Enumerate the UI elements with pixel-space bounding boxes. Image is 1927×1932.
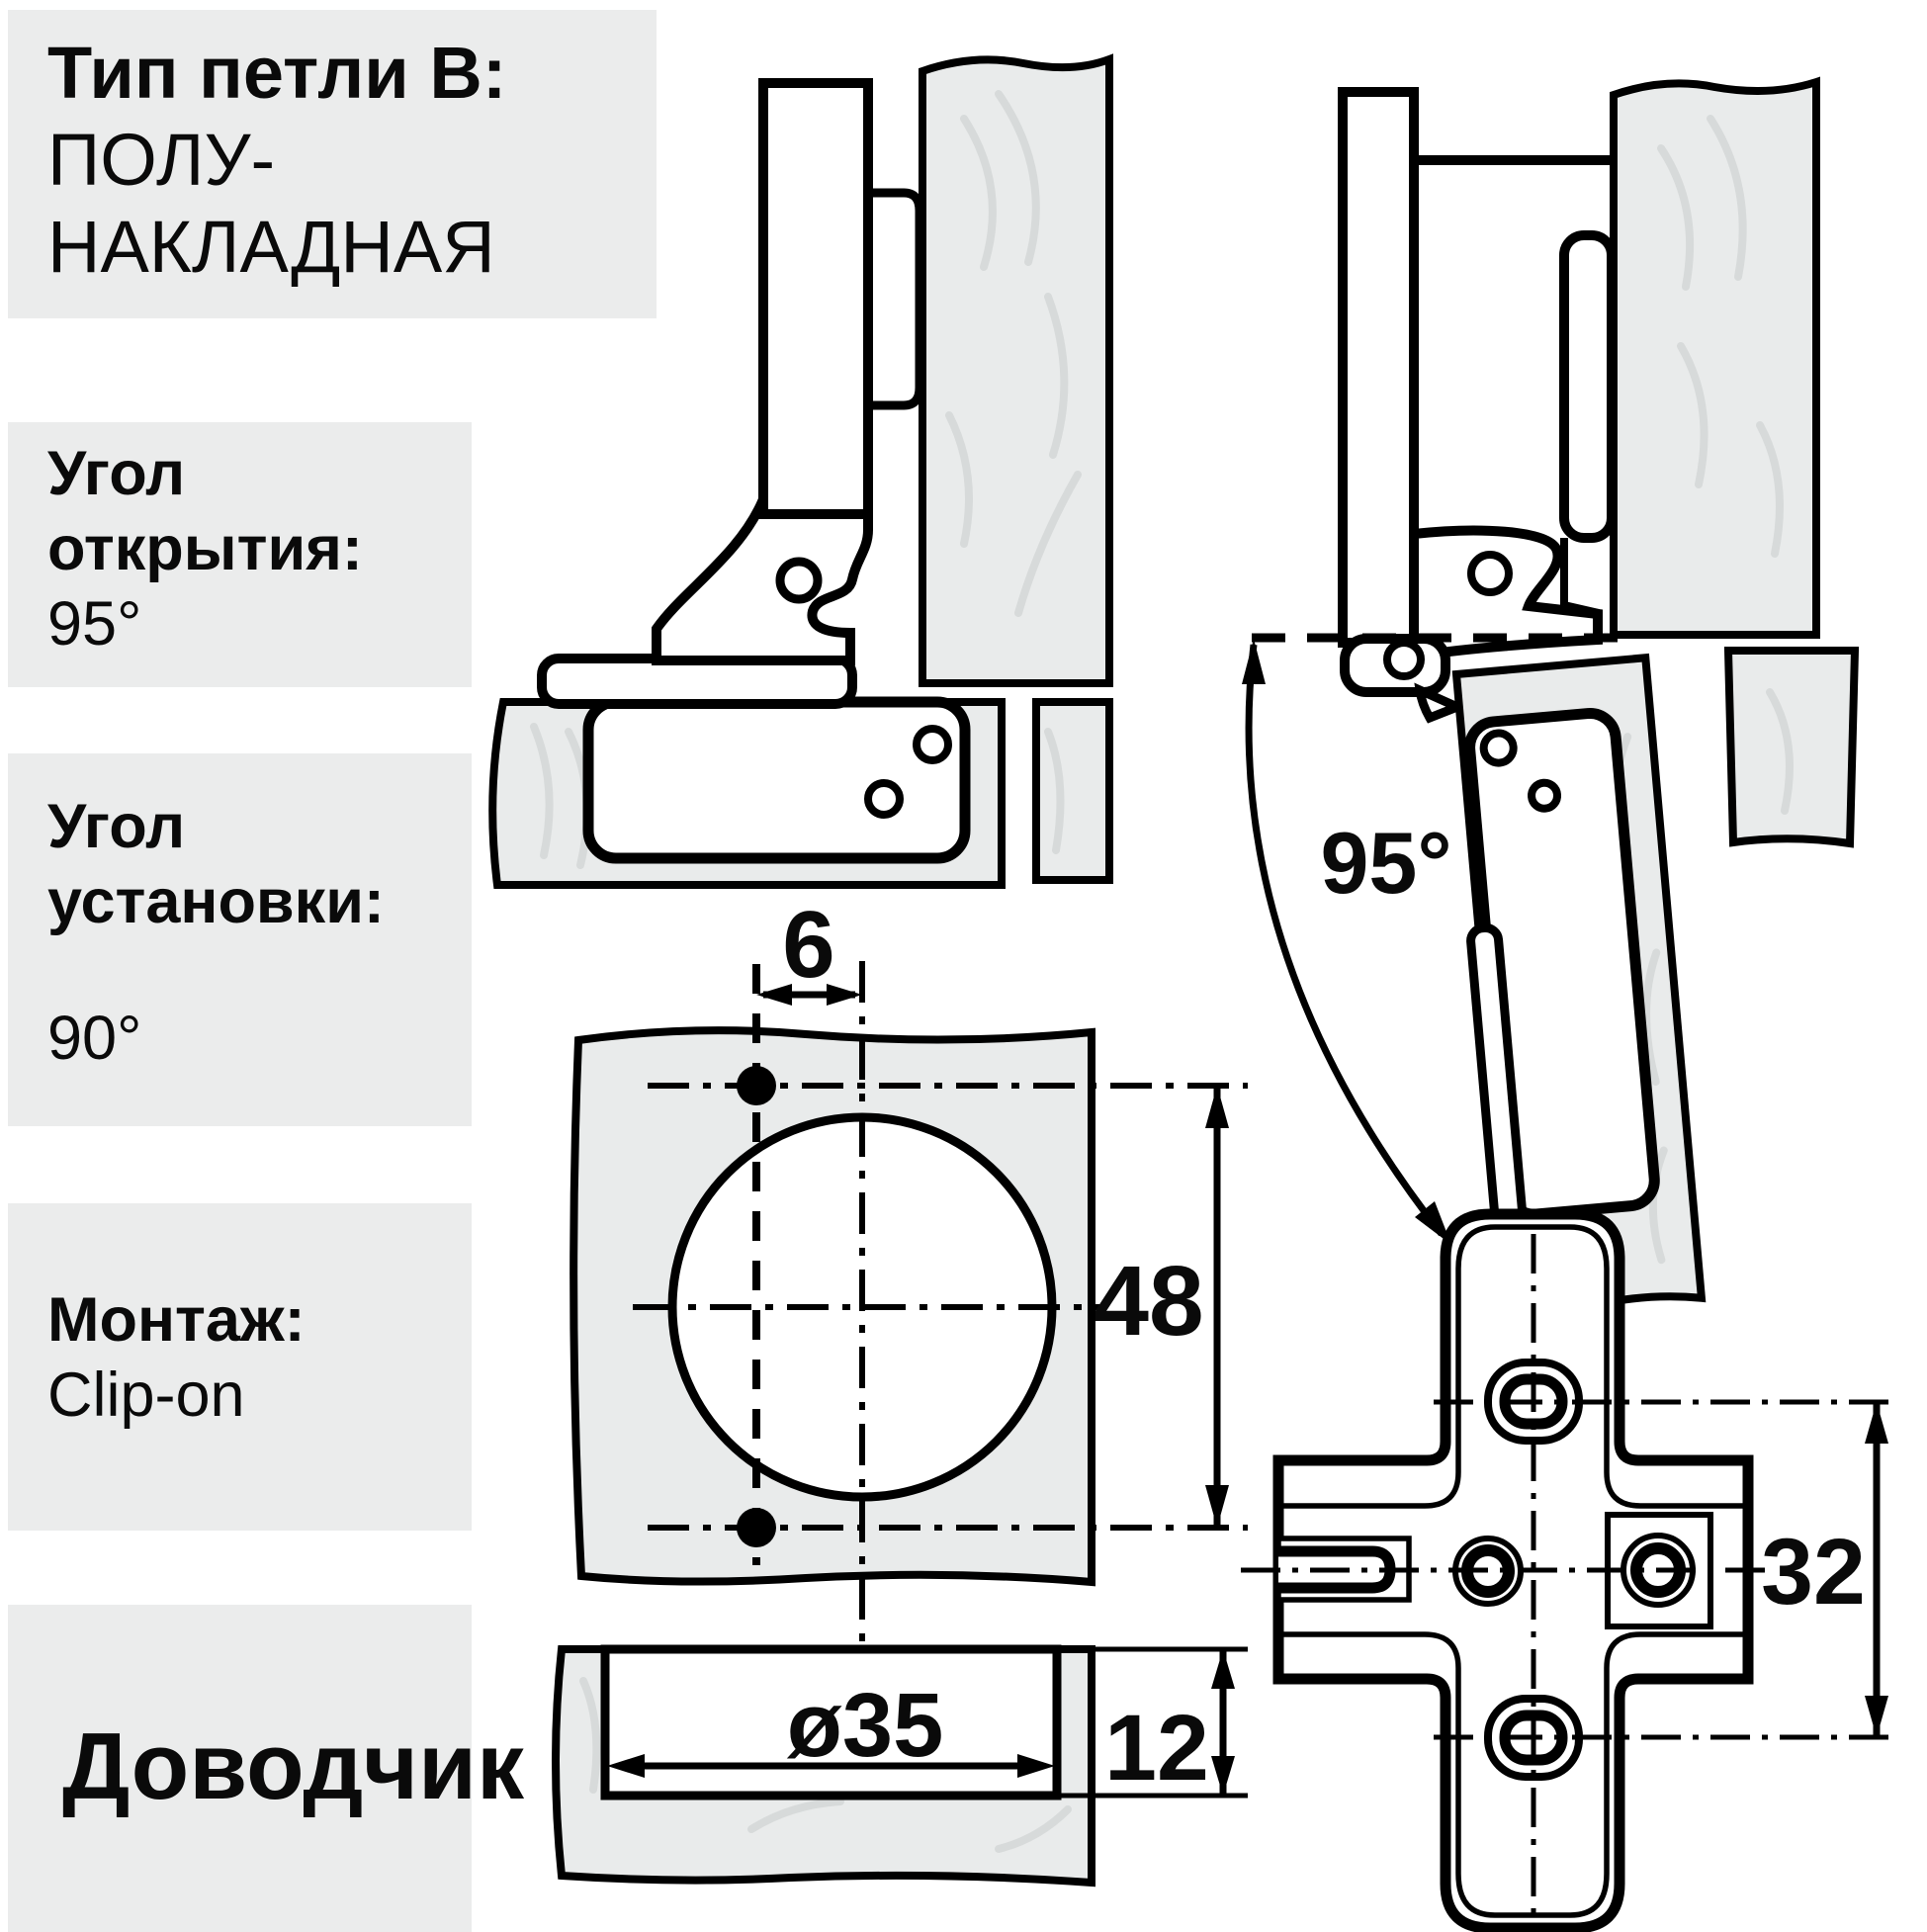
opening-angle-value: 95° xyxy=(47,586,472,661)
hinge-arm-open xyxy=(1343,92,1414,643)
dim6-label: 6 xyxy=(782,892,834,998)
open-angle-label: 95° xyxy=(1320,814,1451,912)
mounting-angle-label-line1: Угол xyxy=(47,789,472,864)
hinge-type-value-line2: НАКЛАДНАЯ xyxy=(47,204,657,291)
cup-recess xyxy=(588,702,965,858)
dim32-arrow-top xyxy=(1865,1402,1888,1444)
drawing-cup-section: ø35 12 xyxy=(556,1649,1248,1883)
mounting-angle-label-line2: установки: xyxy=(47,864,472,939)
drawing-hinge-open: 95° xyxy=(1242,82,1855,1316)
drawing-mounting-plate: 32 xyxy=(1241,1214,1890,1928)
dim12-label: 12 xyxy=(1104,1696,1209,1800)
mounting-value: Clip-on xyxy=(47,1358,472,1433)
foot-tab xyxy=(1420,690,1457,718)
screw-hole-top xyxy=(737,1066,776,1105)
dim48-arrow-top xyxy=(1205,1086,1229,1128)
dim12-arrow-bottom xyxy=(1211,1756,1235,1796)
screw-hole-bottom xyxy=(737,1508,776,1547)
dim12-arrow-top xyxy=(1211,1649,1235,1689)
pivot-screw xyxy=(1387,643,1421,676)
hinge-type-label: Тип петли B: xyxy=(47,30,657,117)
cup-plate xyxy=(763,83,868,514)
base-plate-tab xyxy=(1564,235,1612,538)
dim-d35-label: ø35 xyxy=(787,1675,944,1776)
arm-screw xyxy=(780,562,818,599)
spec-block-hinge-type: Тип петли B: ПОЛУ- НАКЛАДНАЯ xyxy=(8,10,657,318)
cup-screw xyxy=(1531,782,1558,810)
dim32-arrow-bottom xyxy=(1865,1696,1888,1737)
cabinet-side-panel xyxy=(1614,82,1816,635)
opening-arc xyxy=(1249,645,1442,1234)
opening-angle-label-line2: открытия: xyxy=(47,511,472,586)
dim48-label: 48 xyxy=(1094,1246,1203,1357)
cup-plate-tab xyxy=(868,193,920,405)
hinge-arm xyxy=(657,499,868,660)
dim48-arrow-bottom xyxy=(1205,1485,1229,1528)
recess-hole xyxy=(868,783,900,815)
spec-block-mounting-angle: Угол установки: 90° xyxy=(8,753,472,1126)
opening-angle-label-line1: Угол xyxy=(47,436,472,511)
arm-screw xyxy=(1471,555,1509,592)
hinge-type-value-line1: ПОЛУ- xyxy=(47,117,657,204)
arc-arrowhead-up xyxy=(1242,639,1266,684)
dim32-label: 32 xyxy=(1761,1520,1866,1625)
spec-block-mounting: Монтаж: Clip-on xyxy=(8,1203,472,1531)
spec-block-opening-angle: Угол открытия: 95° xyxy=(8,422,472,687)
cup-screw xyxy=(1482,732,1515,764)
recess-hole xyxy=(917,729,948,760)
closer-label: Доводчик xyxy=(62,1715,472,1818)
spec-block-closer: Доводчик xyxy=(8,1605,472,1932)
door-panel xyxy=(922,59,1109,683)
mounting-label: Монтаж: xyxy=(47,1282,472,1358)
mounting-angle-value: 90° xyxy=(47,1001,472,1076)
